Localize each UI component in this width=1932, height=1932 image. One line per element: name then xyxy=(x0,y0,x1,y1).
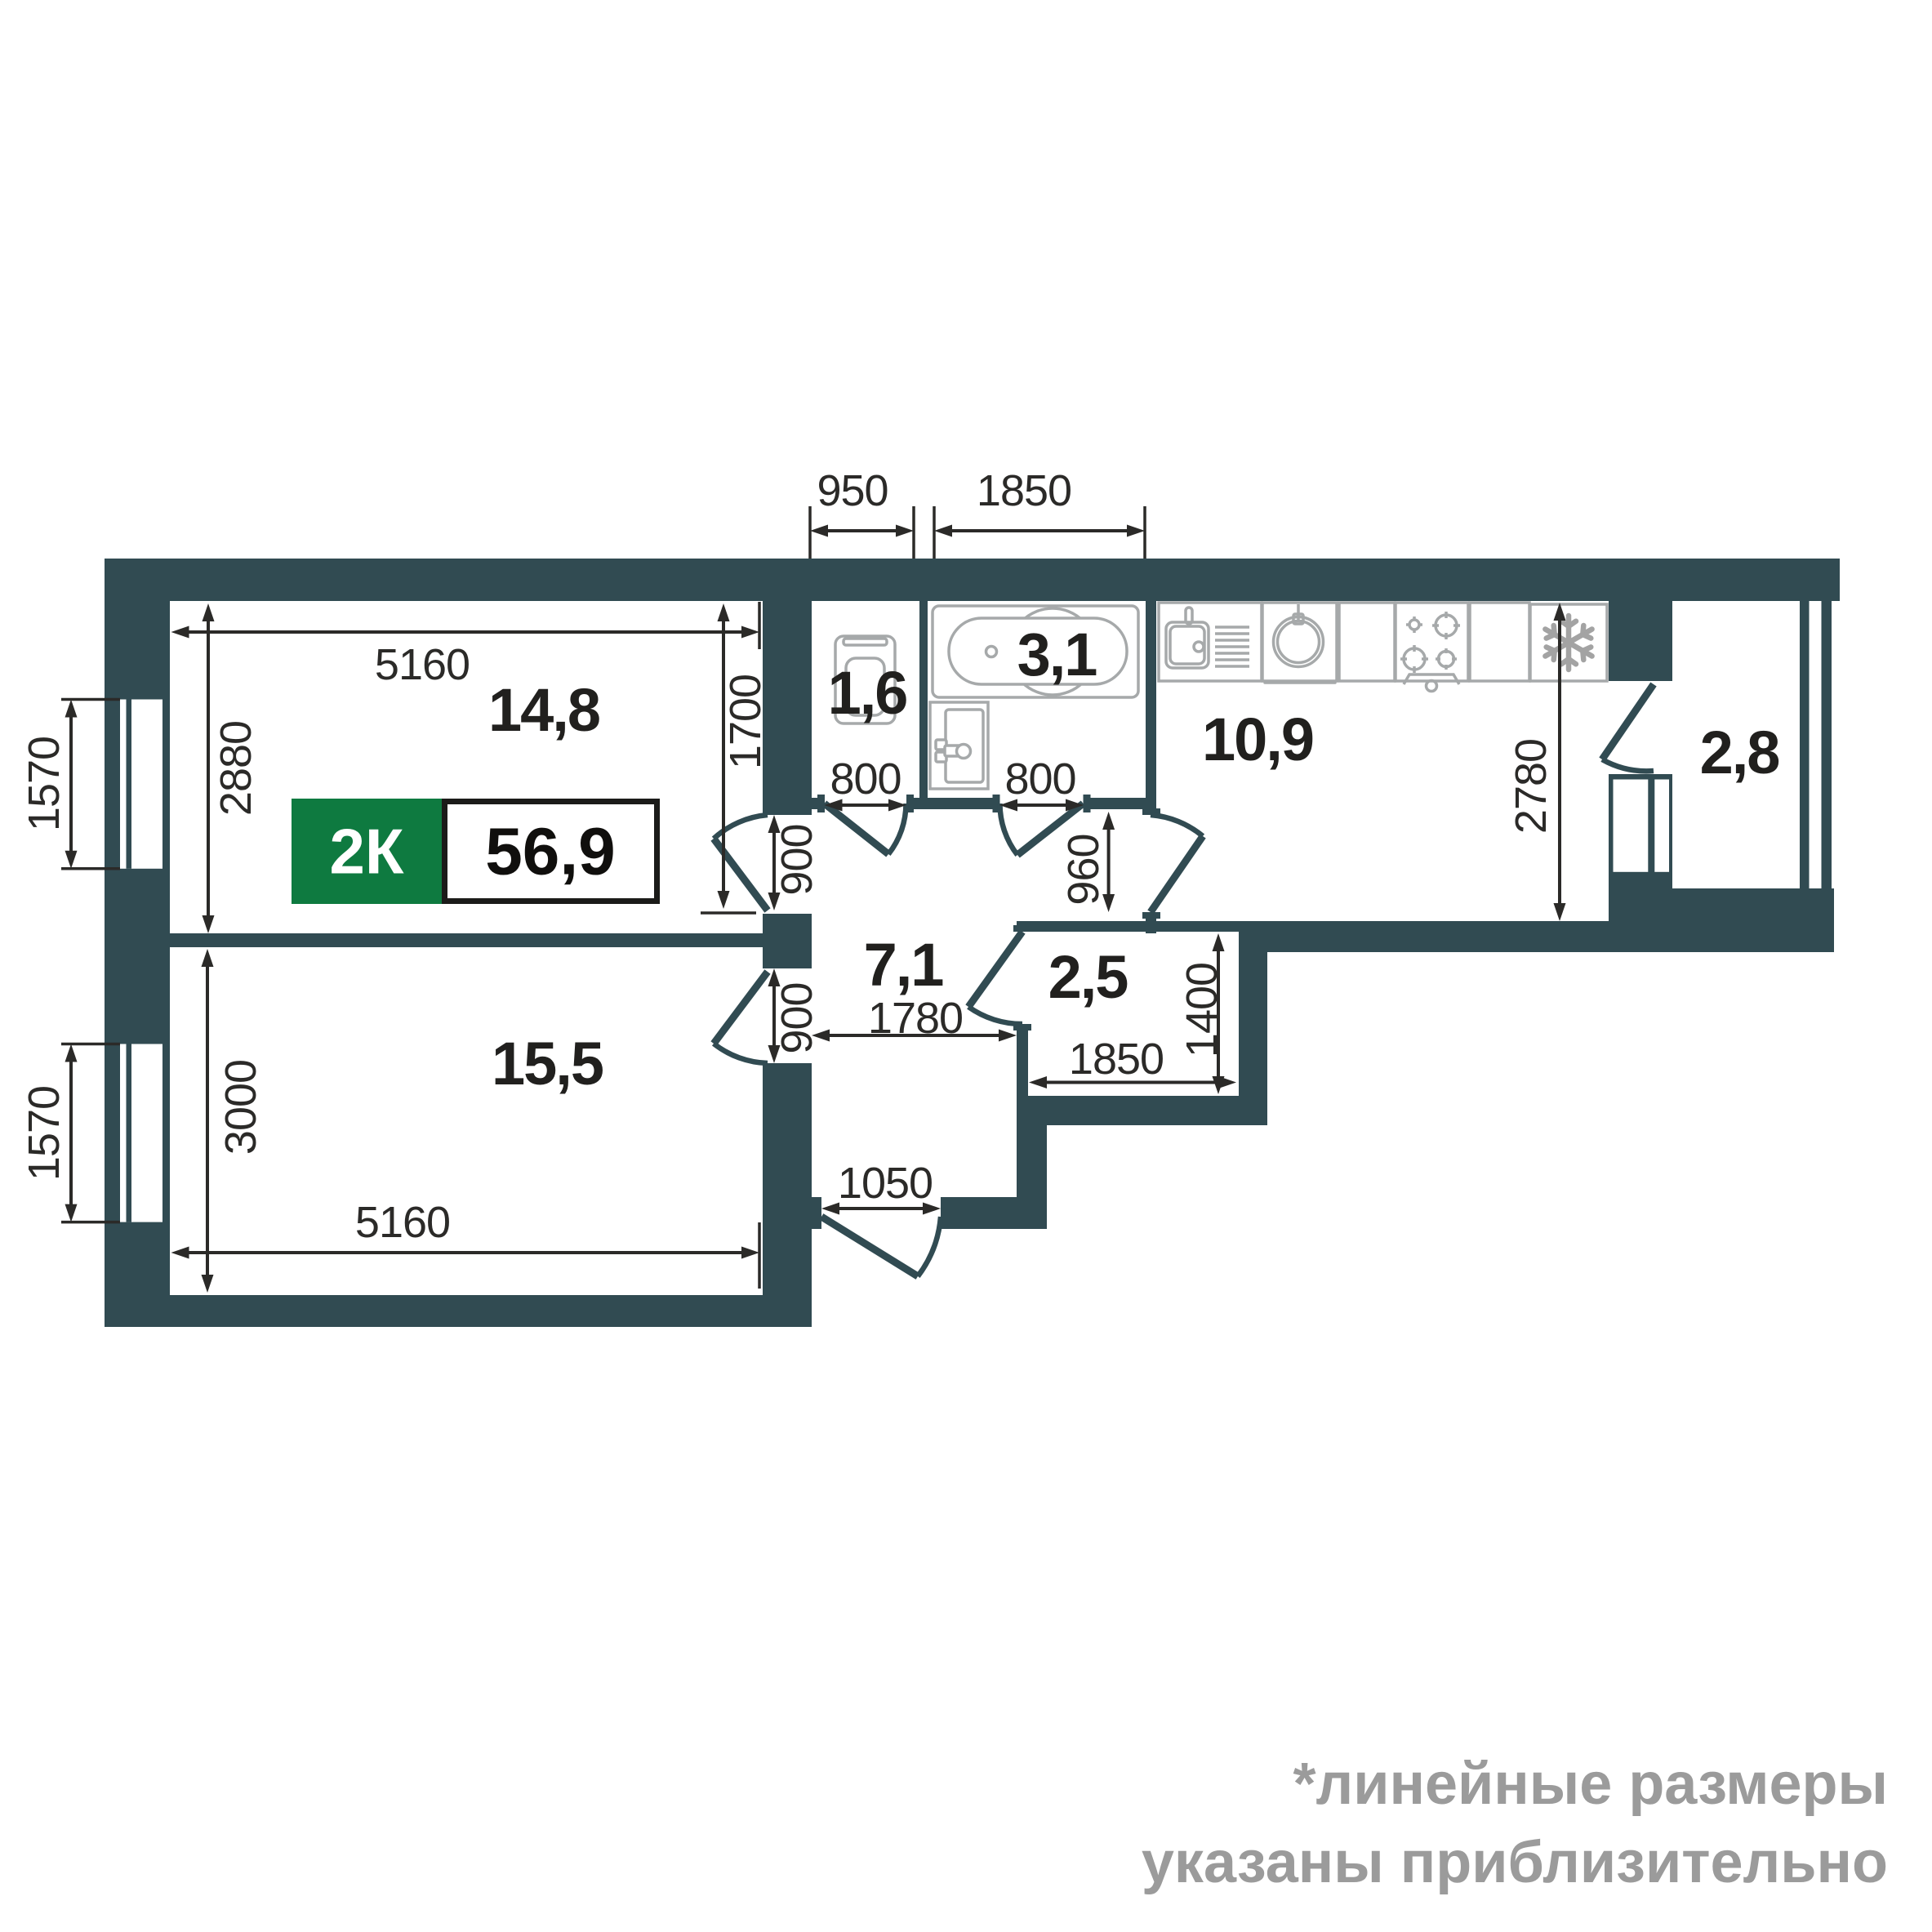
svg-text:800: 800 xyxy=(1004,755,1075,804)
svg-text:1570: 1570 xyxy=(20,1086,69,1181)
svg-text:5160: 5160 xyxy=(355,1198,450,1247)
svg-text:1850: 1850 xyxy=(977,466,1071,515)
svg-text:1,6: 1,6 xyxy=(828,659,907,727)
svg-text:2880: 2880 xyxy=(211,721,260,816)
svg-text:1780: 1780 xyxy=(868,994,963,1043)
svg-text:800: 800 xyxy=(830,755,901,804)
svg-text:1400: 1400 xyxy=(1177,963,1226,1057)
svg-text:950: 950 xyxy=(817,466,888,515)
svg-text:1050: 1050 xyxy=(838,1159,933,1208)
svg-text:56,9: 56,9 xyxy=(485,815,616,889)
svg-text:15,5: 15,5 xyxy=(492,1030,603,1097)
svg-text:*линейные размеры: *линейные размеры xyxy=(1293,1752,1888,1817)
svg-text:10,9: 10,9 xyxy=(1202,706,1313,773)
svg-text:7,1: 7,1 xyxy=(864,931,944,999)
svg-text:900: 900 xyxy=(772,824,821,895)
svg-text:3000: 3000 xyxy=(216,1060,265,1155)
svg-text:1850: 1850 xyxy=(1069,1035,1164,1084)
svg-text:14,8: 14,8 xyxy=(488,676,599,744)
svg-text:2К: 2К xyxy=(330,815,404,887)
svg-text:указаны приблизительно: указаны приблизительно xyxy=(1142,1830,1888,1895)
svg-text:3,1: 3,1 xyxy=(1017,621,1097,688)
svg-text:2,8: 2,8 xyxy=(1700,719,1779,786)
svg-text:1570: 1570 xyxy=(20,737,69,831)
svg-text:2,5: 2,5 xyxy=(1048,943,1128,1011)
svg-text:2780: 2780 xyxy=(1507,739,1556,834)
svg-text:960: 960 xyxy=(1059,834,1108,905)
svg-text:5160: 5160 xyxy=(375,640,470,689)
svg-text:900: 900 xyxy=(772,982,821,1053)
svg-text:1700: 1700 xyxy=(721,674,770,769)
